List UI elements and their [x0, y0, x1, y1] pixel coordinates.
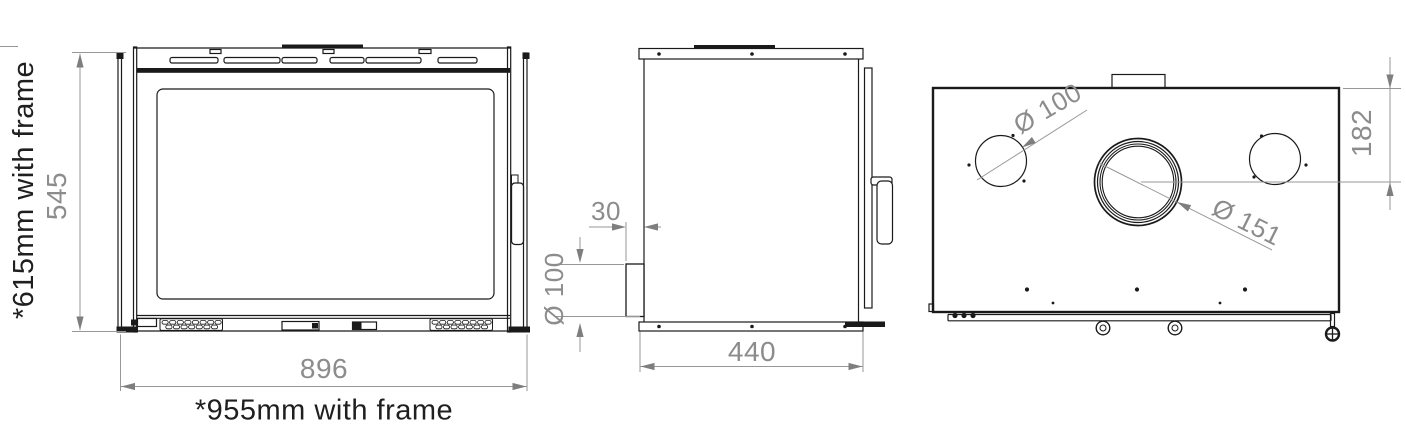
body-right-edge	[508, 47, 511, 332]
door-handle-front	[512, 183, 524, 245]
front-foot	[845, 322, 885, 328]
front-height-dim-label: 545	[41, 172, 72, 220]
front-height-frame-label: *615mm with frame	[8, 61, 40, 319]
glass-window	[157, 89, 494, 299]
stove-dimension-drawing: *615mm with frame 545 896 *955mm with fr…	[0, 0, 1406, 447]
leveling-pin	[1331, 314, 1335, 327]
foot-left	[1096, 321, 1110, 335]
front-width-frame-label: *955mm with frame	[195, 395, 453, 427]
rear-flue-offset-label: 182	[1346, 109, 1377, 157]
bottom-plate-screws	[657, 325, 847, 329]
bottom-left-clip	[131, 320, 137, 326]
side-view	[626, 45, 893, 331]
rear-view	[929, 75, 1340, 342]
top-flue-tab-front	[282, 45, 363, 49]
rail-fixings	[952, 313, 975, 318]
leveling-knob	[1326, 327, 1340, 342]
door-handle-side	[877, 181, 893, 244]
side-offset-dim-label: 30	[591, 196, 621, 226]
top-plate-screws	[657, 52, 847, 56]
flue-bracket-tab	[1112, 75, 1165, 89]
rear-panel	[933, 88, 1339, 312]
top-edge-notches	[210, 50, 431, 54]
side-dimensions: 30 Ø 100 440	[539, 196, 863, 372]
foot-right	[1168, 321, 1182, 335]
frame-corner-top-right	[523, 53, 530, 60]
frame-corner-top-left	[117, 53, 124, 60]
air-grille-left	[160, 319, 223, 331]
body-left-edge	[134, 47, 137, 332]
air-control-knob	[312, 323, 318, 329]
bottom-left-box	[138, 319, 157, 327]
frame-left-strip	[118, 53, 122, 331]
front-width-dim-label: 896	[300, 353, 348, 384]
stove-technical-drawing-page: *615mm with frame 545 896 *955mm with fr…	[0, 0, 1406, 447]
secondary-control-knob	[353, 322, 362, 330]
vent-slots	[170, 58, 477, 64]
air-grille-right	[430, 319, 493, 331]
side-outlet-diameter-label: Ø 100	[539, 252, 569, 325]
door-panel-side	[865, 68, 873, 308]
top-dark-band	[137, 68, 510, 73]
side-depth-dim-label: 440	[728, 336, 776, 367]
front-dimensions: *615mm with frame 545 896 *955mm with fr…	[0, 47, 527, 427]
front-view	[117, 45, 531, 333]
rear-outlet-spigot	[626, 264, 644, 317]
